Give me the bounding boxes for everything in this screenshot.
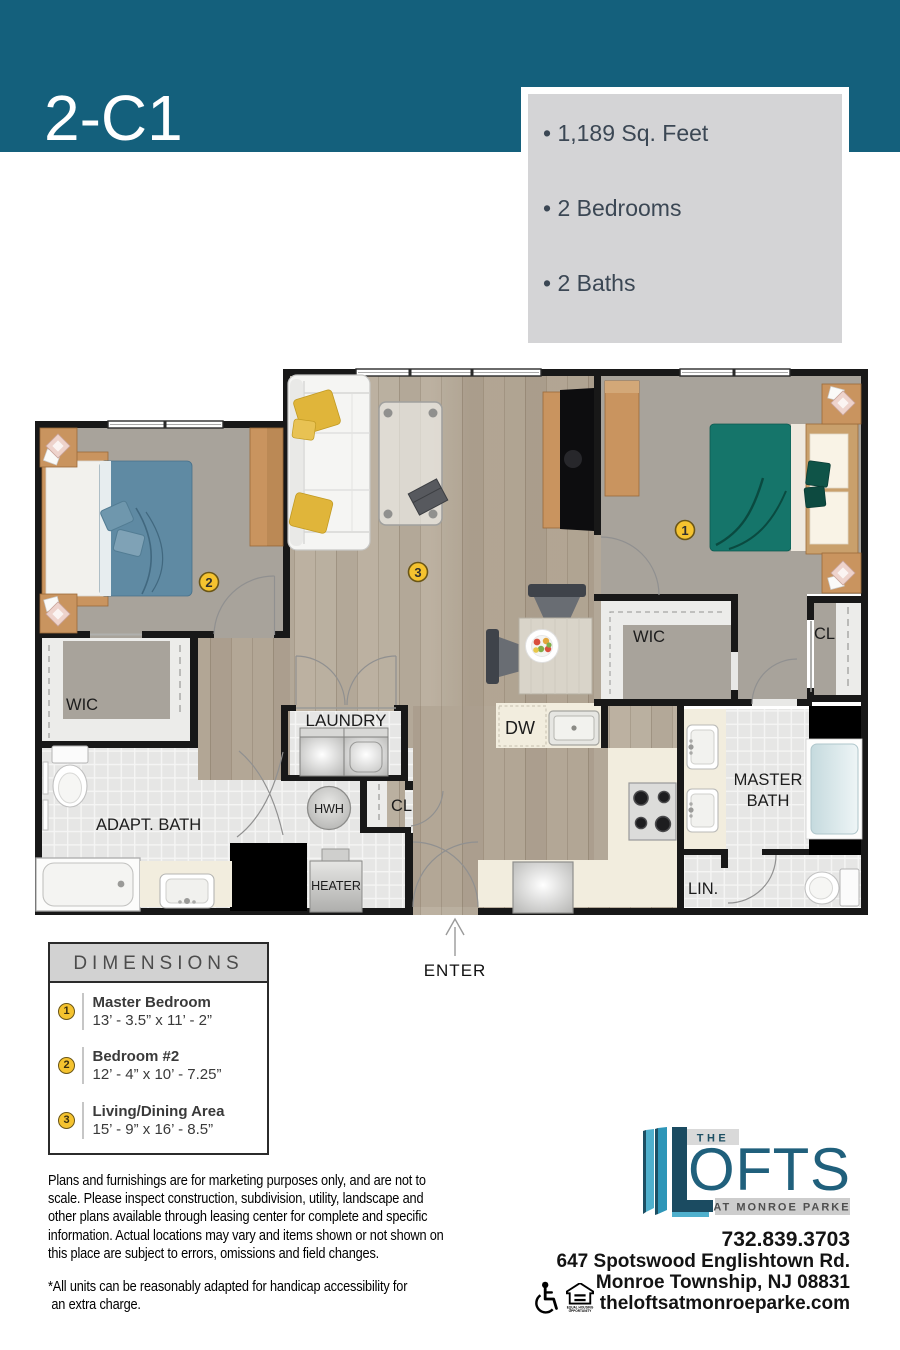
svg-text:OPPORTUNITY: OPPORTUNITY	[569, 1309, 593, 1313]
svg-text:WIC: WIC	[66, 696, 98, 714]
svg-text:BATH: BATH	[747, 792, 790, 810]
svg-text:CL: CL	[814, 625, 835, 643]
svg-text:HWH: HWH	[314, 802, 344, 816]
svg-text:2: 2	[205, 575, 212, 590]
svg-text:WIC: WIC	[633, 628, 665, 646]
svg-text:ENTER: ENTER	[424, 961, 487, 980]
svg-text:DW: DW	[505, 718, 535, 738]
svg-text:AT MONROE PARKE: AT MONROE PARKE	[713, 1202, 850, 1214]
svg-text:3: 3	[414, 565, 421, 580]
svg-text:OFTS: OFTS	[688, 1136, 850, 1203]
svg-text:HEATER: HEATER	[311, 879, 361, 893]
svg-text:LAUNDRY: LAUNDRY	[306, 711, 387, 730]
svg-text:1: 1	[681, 523, 688, 538]
svg-text:ADAPT. BATH: ADAPT. BATH	[96, 816, 201, 834]
svg-text:LIN.: LIN.	[688, 880, 718, 898]
svg-text:MASTER: MASTER	[734, 771, 803, 789]
svg-text:CL: CL	[391, 797, 412, 815]
